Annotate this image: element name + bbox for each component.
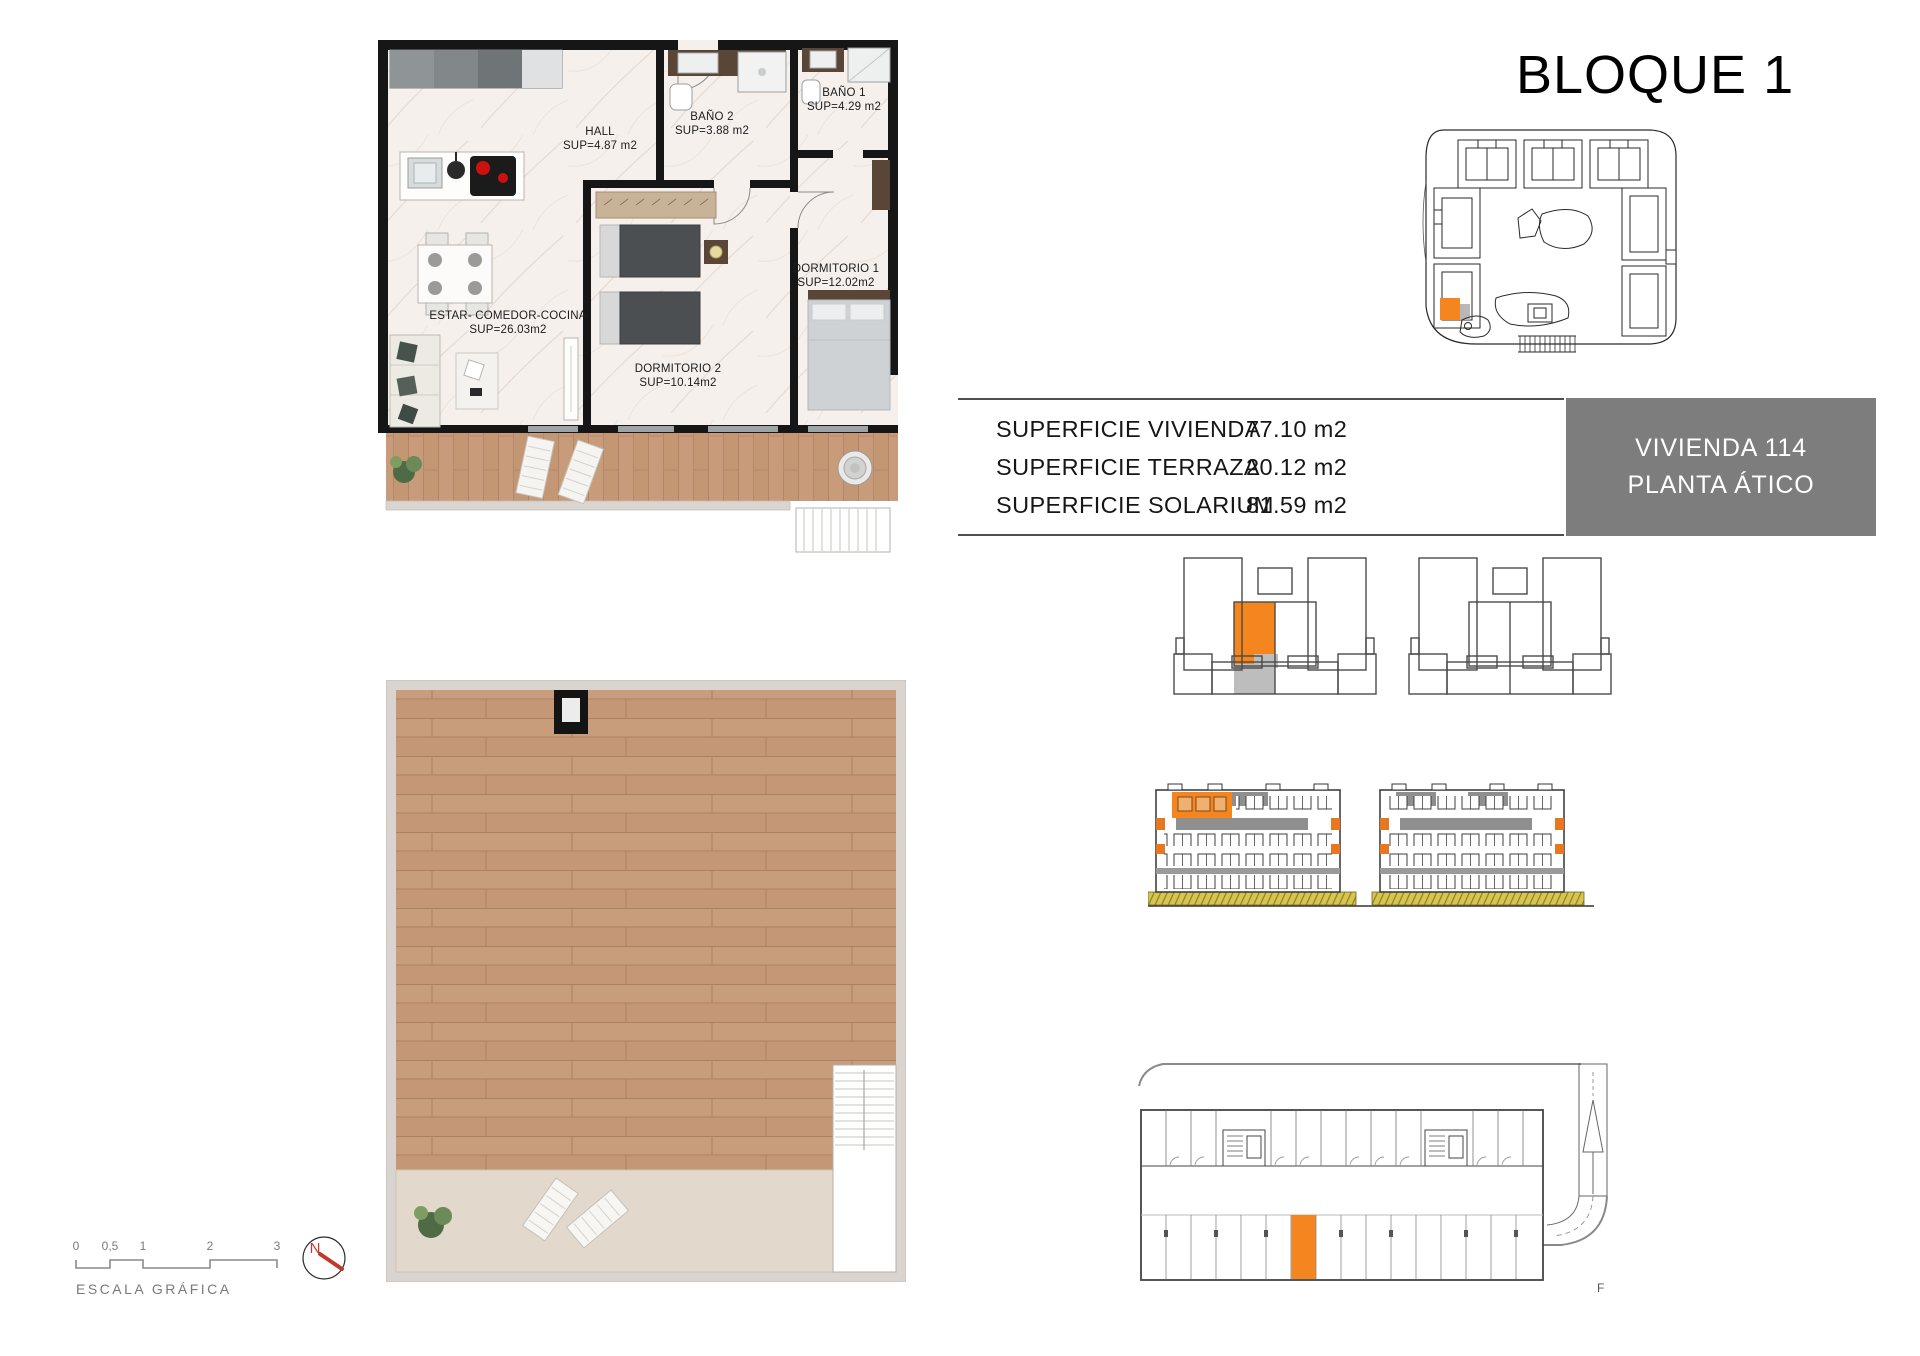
room-area-bano1: SUP=4.29 m2 [807,101,881,113]
basement-parking-plan: F [1135,1052,1615,1297]
surface-label: SUPERFICIE SOLARIUM [996,492,1246,519]
scale-tick: 3 [274,1239,281,1253]
scale-bar-label: ESCALA GRÁFICA [76,1281,232,1297]
surface-label: SUPERFICIE TERRAZA [996,454,1246,481]
room-label-dorm2: DORMITORIO 2 [635,363,722,375]
unit-badge: VIVIENDA 114 PLANTA ÁTICO [1566,398,1876,536]
room-area-dorm2: SUP=10.14m2 [639,377,716,389]
scale-tick: 2 [207,1239,214,1253]
page-title: BLOQUE 1 [1516,44,1794,106]
parking-ramp-corridor [1579,1064,1607,1196]
solarium-stairs [833,1065,896,1272]
scale-tick: 0 [73,1239,80,1253]
kitchen-cabinets [390,50,562,88]
surface-summary-table: SUPERFICIE VIVIENDA 77.10 m2 SUPERFICIE … [958,398,1564,536]
site-pools [1518,209,1592,249]
scale-bar-profile [76,1260,277,1268]
surface-value: 77.10 m2 [1246,416,1347,443]
parking-corner-mark: F [1597,1281,1604,1295]
table-row: SUPERFICIE SOLARIUM 81.59 m2 [958,486,1564,524]
kitchen-island [400,152,524,200]
unit-badge-line2: PLANTA ÁTICO [1628,467,1815,504]
terrace-floor [386,433,898,510]
tv-unit [564,338,578,420]
room-label-dorm1: DORMITORIO 1 [793,263,880,275]
parking-curved-road [1543,1196,1607,1245]
apartment-floor-plan: HALL SUP=4.87 m2 BAÑO 2 SUP=3.88 m2 BAÑO… [378,40,906,555]
room-label-bano2: BAÑO 2 [690,110,733,123]
elevation-left-building [1148,784,1356,905]
room-area-estar: SUP=26.03m2 [469,324,546,336]
dining-table [418,233,492,315]
chimney [554,690,588,734]
terrace-stairs [796,508,890,552]
site-top-blocks [1458,140,1648,188]
room-area-hall: SUP=4.87 m2 [563,140,637,152]
parking-highlight-stall [1292,1215,1317,1279]
solarium-wood-deck [396,690,896,1170]
building-elevations [1148,772,1594,912]
table-row: SUPERFICIE TERRAZA 20.12 m2 [958,448,1564,486]
scale-tick: 0,5 [102,1239,119,1253]
jacuzzi [838,451,872,485]
site-right-blocks [1622,188,1676,336]
site-plan [1400,122,1692,362]
room-label-estar: ESTAR- COMEDOR-COCINA [429,310,586,322]
floor-key-plain [1405,552,1615,700]
room-area-bano2: SUP=3.88 m2 [675,125,749,137]
room-label-bano1: BAÑO 1 [822,86,865,99]
coffee-table [456,353,498,409]
table-row: SUPERFICIE VIVIENDA 77.10 m2 [958,410,1564,448]
floor-key-highlighted [1170,552,1380,700]
room-area-dorm1: SUP=12.02m2 [797,277,874,289]
compass-icon: N [296,1232,356,1292]
surface-value: 81.59 m2 [1246,492,1347,519]
site-highlight-unit [1440,298,1460,320]
compass-needle [320,1254,342,1269]
parking-structure [1141,1110,1543,1280]
solarium-floor-plan [386,680,906,1282]
surface-value: 20.12 m2 [1246,454,1347,481]
scale-bar: 0 0,5 1 2 3 ESCALA GRÁFICA [66,1236,316,1316]
elevation-right-building [1372,784,1584,905]
scale-tick: 1 [140,1239,147,1253]
parking-top-boundary [1139,1064,1581,1086]
sofa [390,335,440,427]
room-label-hall: HALL [585,126,615,138]
surface-label: SUPERFICIE VIVIENDA [996,416,1246,443]
unit-badge-line1: VIVIENDA 114 [1635,430,1807,467]
